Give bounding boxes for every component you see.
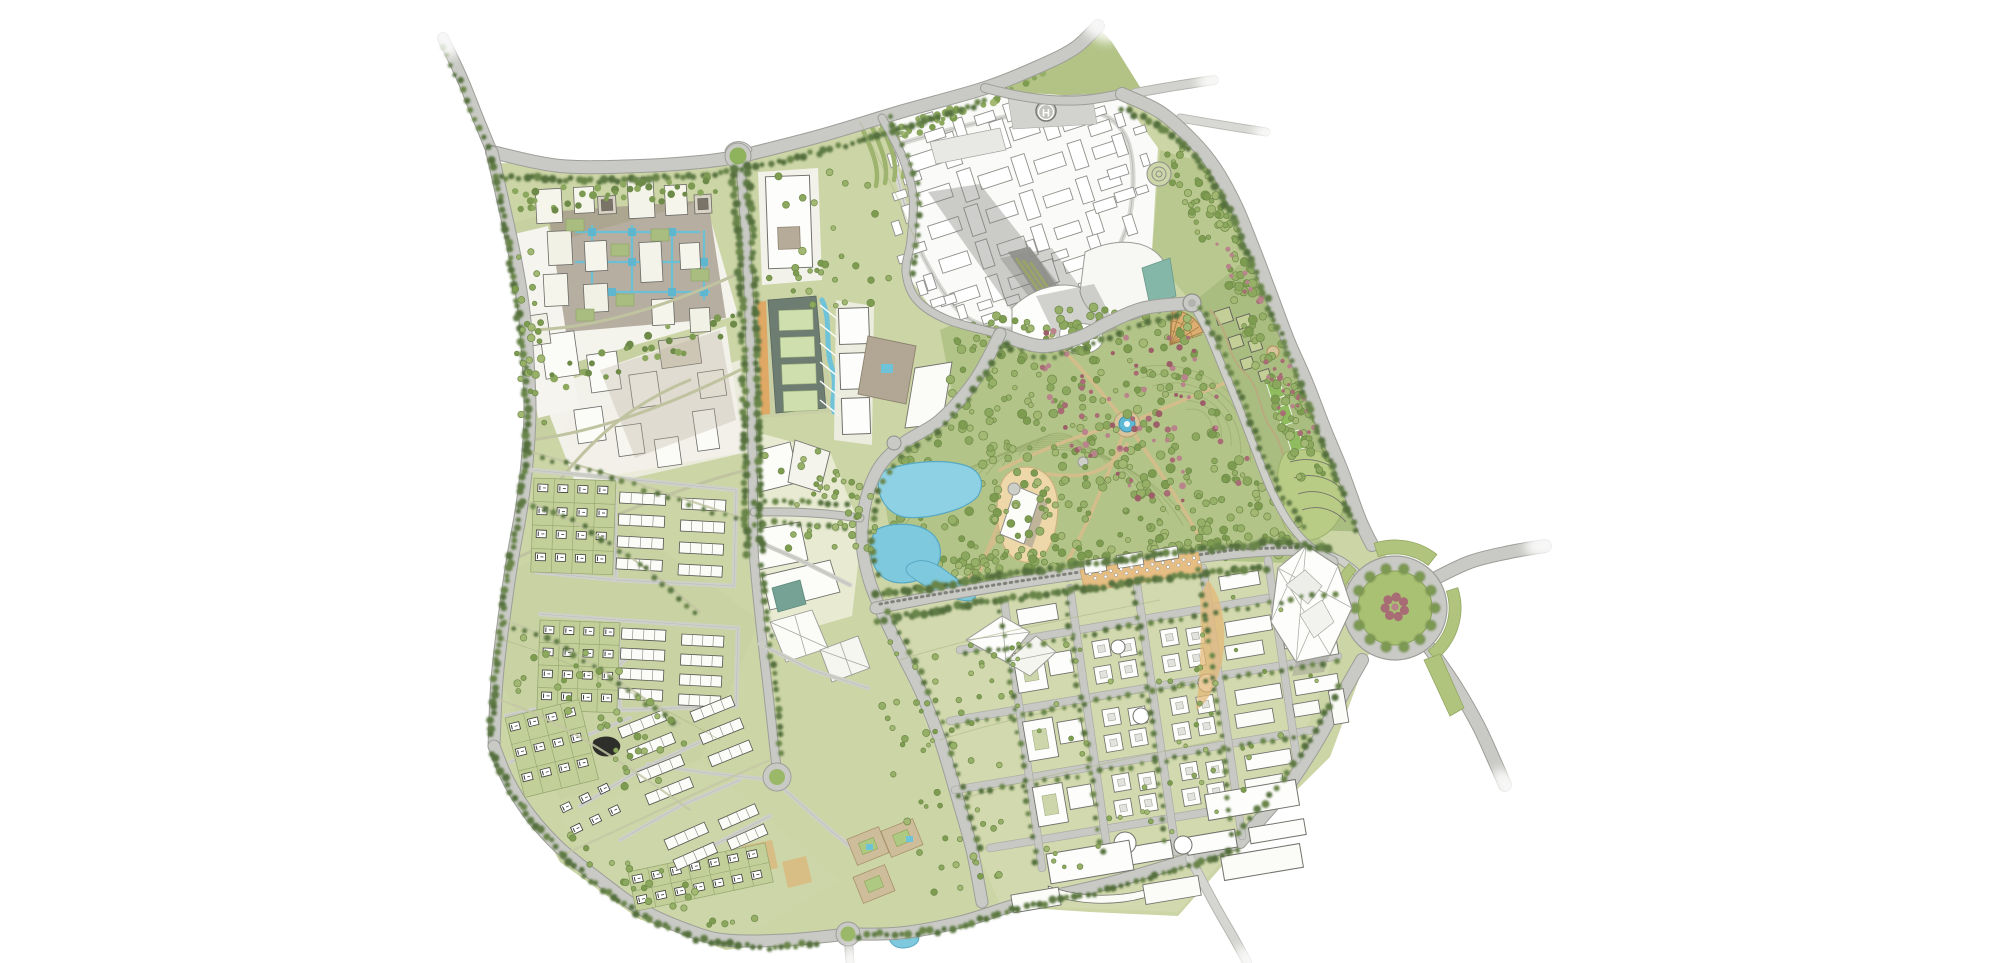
svg-text:H: H: [1042, 108, 1050, 120]
